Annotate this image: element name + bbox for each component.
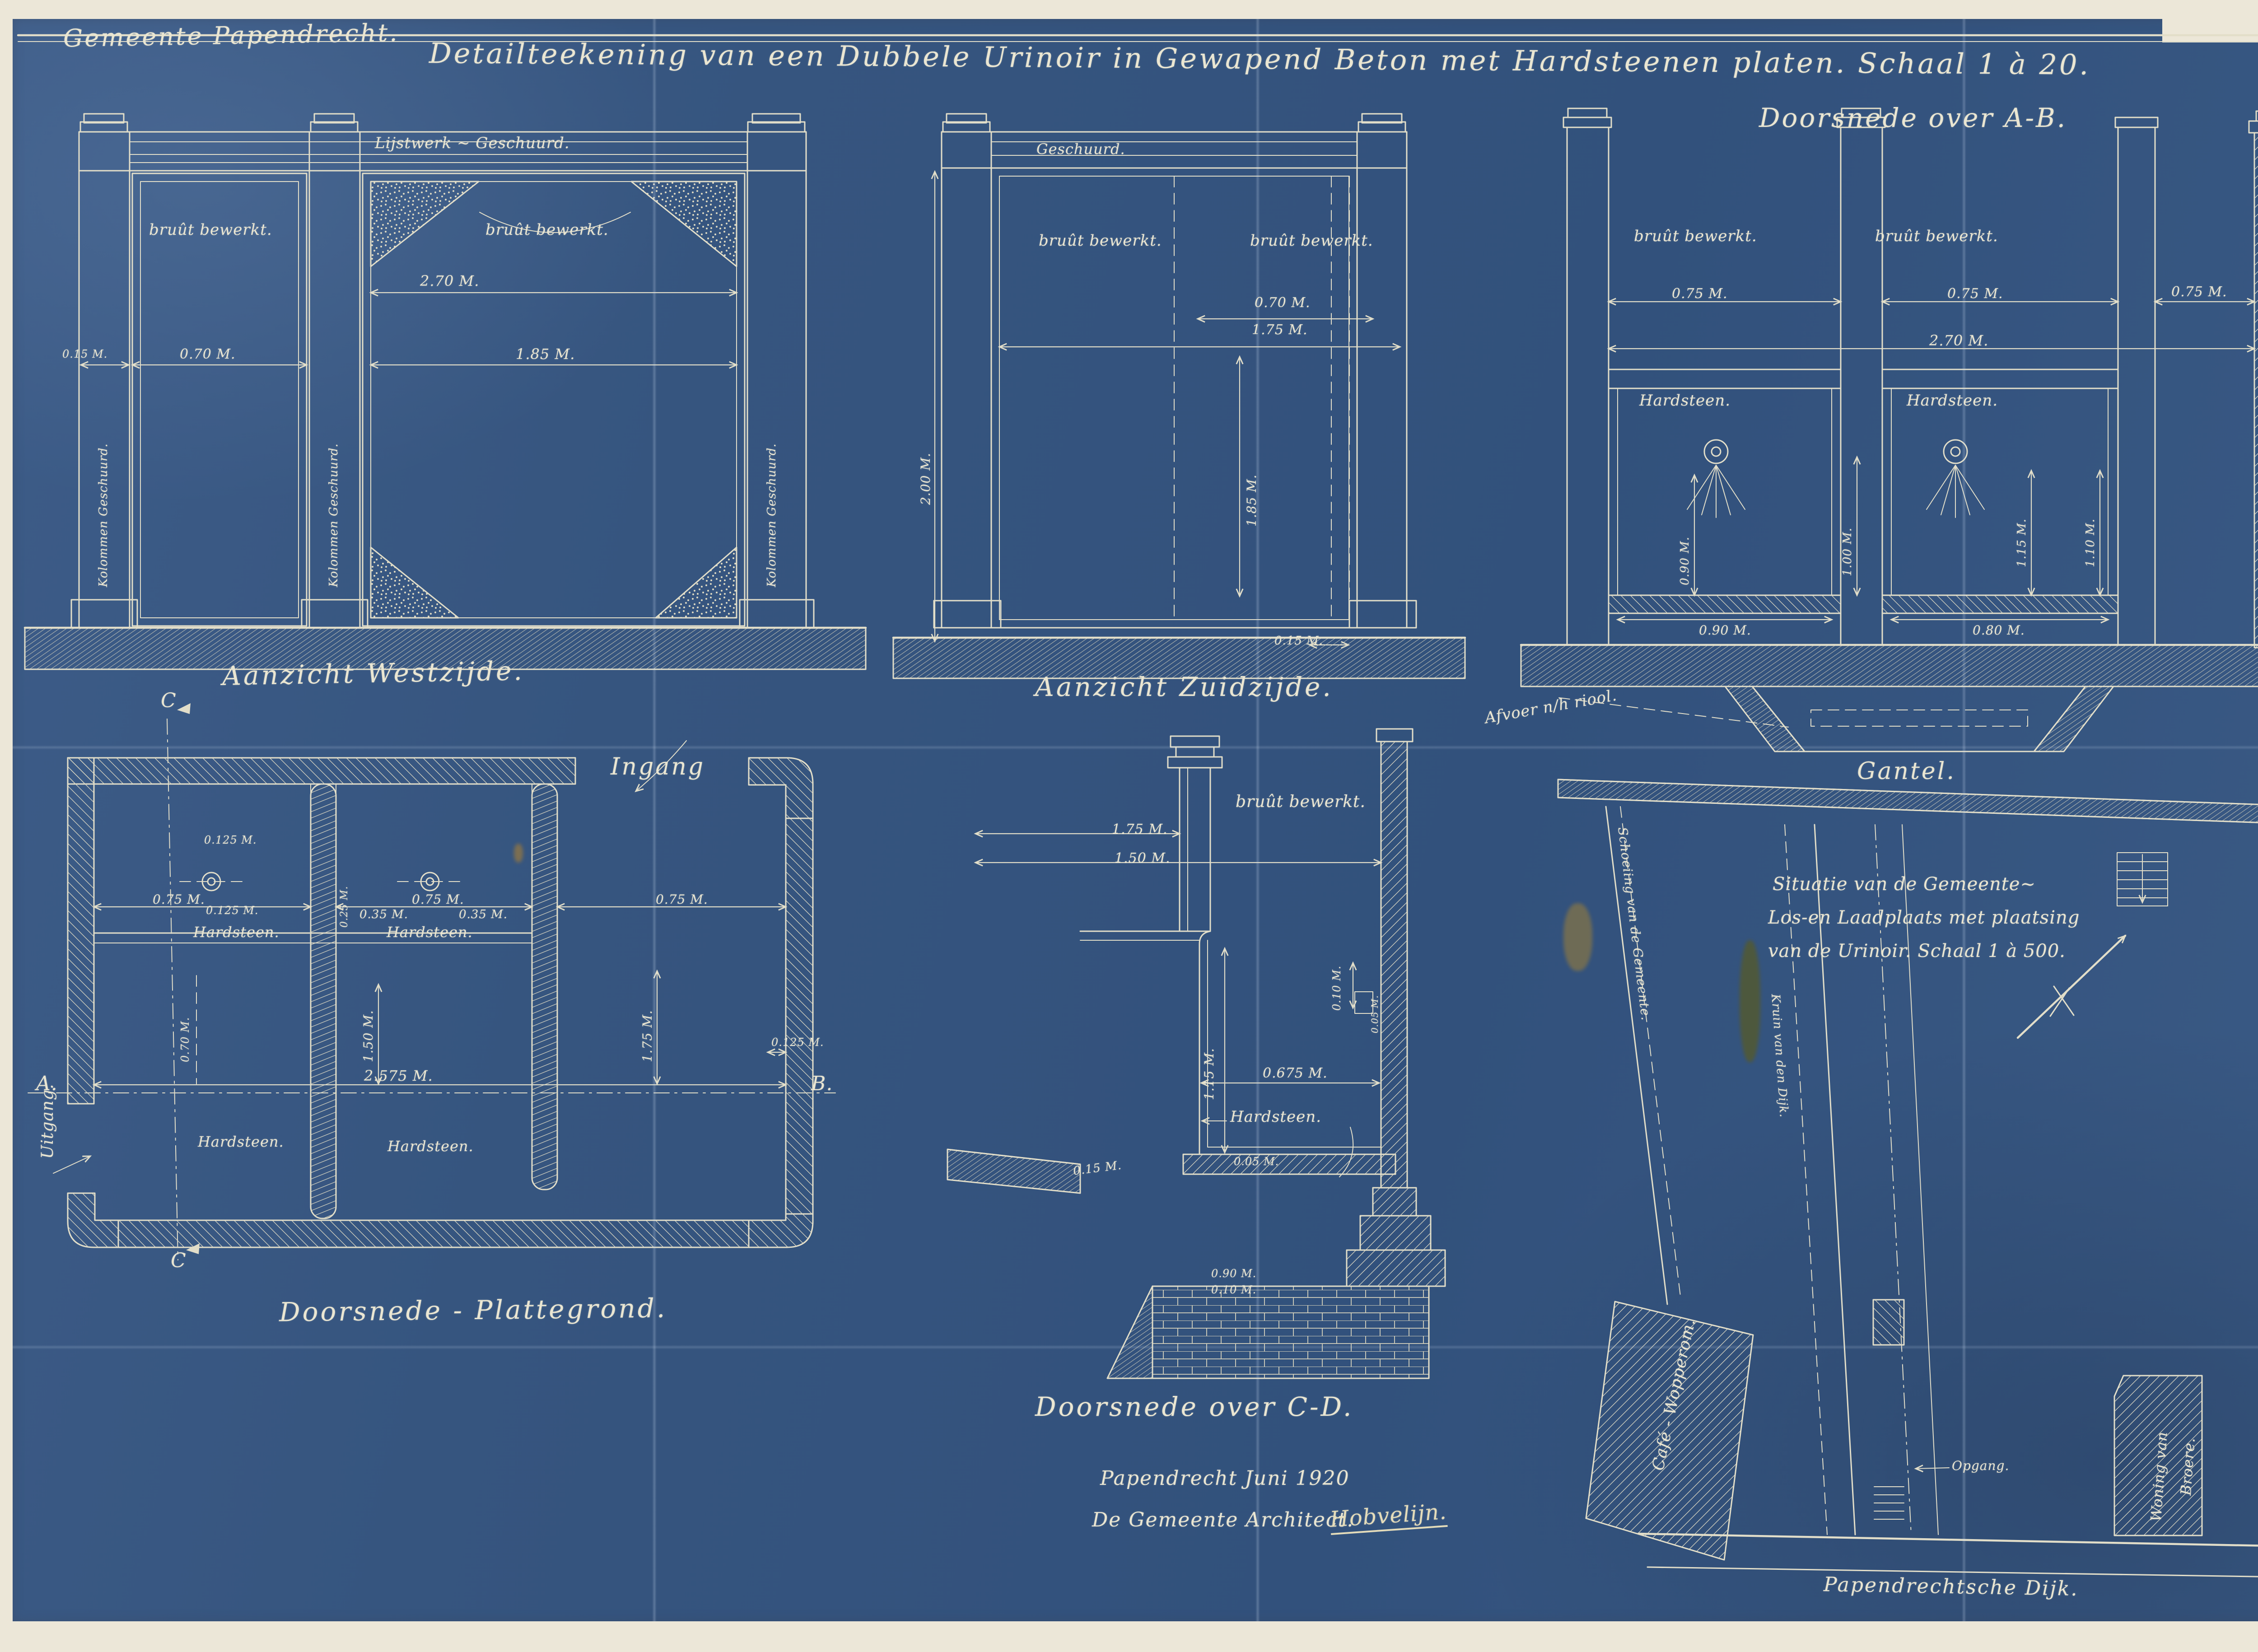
dim-150: 1.50 M. xyxy=(1115,852,1171,865)
ink-stain xyxy=(514,844,523,863)
stairs-icon xyxy=(2117,853,2168,906)
dim-010v: 0.10 M. xyxy=(1331,966,1342,1011)
dim-175: 1.75 M. xyxy=(1252,323,1308,337)
dim-035: 0.35 M. xyxy=(459,909,508,920)
label-woning-broere: Broere. xyxy=(2179,1437,2197,1496)
drawing-section-cd xyxy=(947,729,1445,1378)
label-letter-c-bottom: C xyxy=(171,1251,187,1271)
caption-section-ab: Doorsnede over A-B. xyxy=(1759,105,2067,131)
label-hardsteen: Hardsteen. xyxy=(387,1139,474,1153)
label-bruut-bewerkt: bruût bewerkt. xyxy=(1634,229,1757,244)
dim-080: 0.80 M. xyxy=(1973,624,2025,637)
dim-070v: 0.70 M. xyxy=(180,1017,191,1062)
blueprint-scan: { "colors":{ "paper":"#ece7d8", "sheet_b… xyxy=(0,0,2258,1652)
dim-150v: 1.50 M. xyxy=(362,1010,375,1062)
dim-075: 0.75 M. xyxy=(656,893,708,906)
dim-200: 2.00 M. xyxy=(919,453,932,505)
dim-185: 1.85 M. xyxy=(1246,474,1258,527)
dim-075: 0.75 M. xyxy=(153,893,205,906)
dim-2575: 2.575 M. xyxy=(364,1069,433,1083)
drain-rosette-icon xyxy=(1687,440,1745,518)
dim-070: 0.70 M. xyxy=(180,348,236,361)
dim-075: 0.75 M. xyxy=(1672,287,1728,301)
dim-010: 0.10 M. xyxy=(1211,1284,1256,1295)
label-hardsteen: Hardsteen. xyxy=(1907,393,1998,408)
dim-075: 0.75 M. xyxy=(412,893,464,906)
label-hardsteen: Hardsteen. xyxy=(1639,393,1731,408)
drawing-section-ab xyxy=(1521,108,2258,751)
dim-005: 0.05 M. xyxy=(1234,1156,1279,1167)
label-geschuurd: Geschuurd. xyxy=(1036,142,1125,156)
situatie-text-line1: Situatie van de Gemeente~ xyxy=(1773,875,2036,893)
dim-005v: 0.05 M. xyxy=(1370,995,1379,1033)
label-lijstwerk: Lijstwerk ~ Geschuurd. xyxy=(375,135,570,151)
label-hardsteen: Hardsteen. xyxy=(193,925,280,939)
label-gantel: Gantel. xyxy=(1857,760,1956,783)
municipality-title: Gemeente Papendrecht. xyxy=(63,21,399,51)
dim-070: 0.70 M. xyxy=(1255,296,1311,310)
dim-115v: 1.15 M. xyxy=(2016,518,2028,567)
label-papendrechtsche-dijk: Papendrechtsche Dijk. xyxy=(1824,1575,2079,1599)
label-bruut-bewerkt: bruût bewerkt. xyxy=(1236,794,1366,810)
situatie-text-line3: van de Urinoir. Schaal 1 à 500. xyxy=(1768,942,2066,960)
signature-role: De Gemeente Architect. xyxy=(1092,1510,1354,1530)
dim-115v: 1.15 M. xyxy=(1203,1048,1216,1100)
caption-section-cd: Doorsnede over C-D. xyxy=(1035,1394,1353,1420)
label-kolommen: Kolommen Geschuurd. xyxy=(328,443,340,587)
label-ingang: Ingang xyxy=(611,755,705,779)
label-bruut-bewerkt: bruût bewerkt. xyxy=(1250,233,1373,248)
signature-place-date: Papendrecht Juni 1920 xyxy=(1100,1469,1350,1489)
dim-015: 0.15 M. xyxy=(1274,635,1323,647)
situatie-text-line2: Los-en Laadplaats met plaatsing xyxy=(1768,909,2080,927)
label-bruut-bewerkt: bruût bewerkt. xyxy=(1875,229,1998,244)
label-bruut-bewerkt: bruût bewerkt. xyxy=(149,222,272,238)
dim-025: 0.25 M. xyxy=(340,886,350,928)
dim-0675: 0.675 M. xyxy=(1263,1067,1328,1080)
dim-075: 0.75 M. xyxy=(1947,287,2003,301)
drawing-west-elevation xyxy=(25,114,866,669)
label-hardsteen: Hardsteen. xyxy=(387,925,473,939)
label-hardsteen: Hardsteen. xyxy=(1230,1109,1321,1125)
label-letter-b: B. xyxy=(811,1074,833,1094)
label-letter-a: A. xyxy=(36,1074,58,1094)
dim-035: 0.35 M. xyxy=(359,909,408,920)
label-letter-c-top: C xyxy=(161,691,177,711)
dim-270: 2.70 M. xyxy=(1929,333,1988,348)
dim-090: 0.90 M. xyxy=(1211,1268,1256,1279)
label-bruut-bewerkt: bruût bewerkt. xyxy=(485,222,609,238)
drawing-south-elevation xyxy=(893,114,1465,678)
ink-stain xyxy=(1563,903,1592,971)
ink-stain xyxy=(1740,940,1760,1062)
label-kolommen: Kolommen Geschuurd. xyxy=(98,443,109,587)
drawing-plan xyxy=(28,703,835,1260)
dim-0125: 0.125 M. xyxy=(771,1037,824,1048)
dim-110v: 1.10 M. xyxy=(2085,518,2096,567)
dim-175v: 1.75 M. xyxy=(641,1010,654,1062)
dim-0125: 0.125 M. xyxy=(204,835,257,845)
label-opgang: Opgang. xyxy=(1952,1460,2009,1472)
label-bruut-bewerkt: bruût bewerkt. xyxy=(1039,233,1162,248)
drain-rosette-icon xyxy=(1927,440,1984,518)
dim-075: 0.75 M. xyxy=(2171,285,2227,299)
label-hardsteen: Hardsteen. xyxy=(198,1134,284,1149)
dim-015: 0.15 M. xyxy=(62,349,107,359)
dim-270: 2.70 M. xyxy=(420,274,479,288)
caption-south-elevation: Aanzicht Zuidzijde. xyxy=(1035,674,1333,700)
dim-185: 1.85 M. xyxy=(516,347,575,361)
dim-175: 1.75 M. xyxy=(1112,823,1168,836)
caption-west-elevation: Aanzicht Westzijde. xyxy=(222,658,525,689)
dim-090v: 0.90 M. xyxy=(1679,537,1691,585)
dim-100v: 1.00 M. xyxy=(1842,527,1853,576)
dim-0125: 0.125 M. xyxy=(206,905,259,916)
label-kolommen: Kolommen Geschuurd. xyxy=(766,443,778,587)
caption-plan: Doorsnede - Plattegrond. xyxy=(279,1295,667,1325)
dim-090: 0.90 M. xyxy=(1699,624,1751,637)
